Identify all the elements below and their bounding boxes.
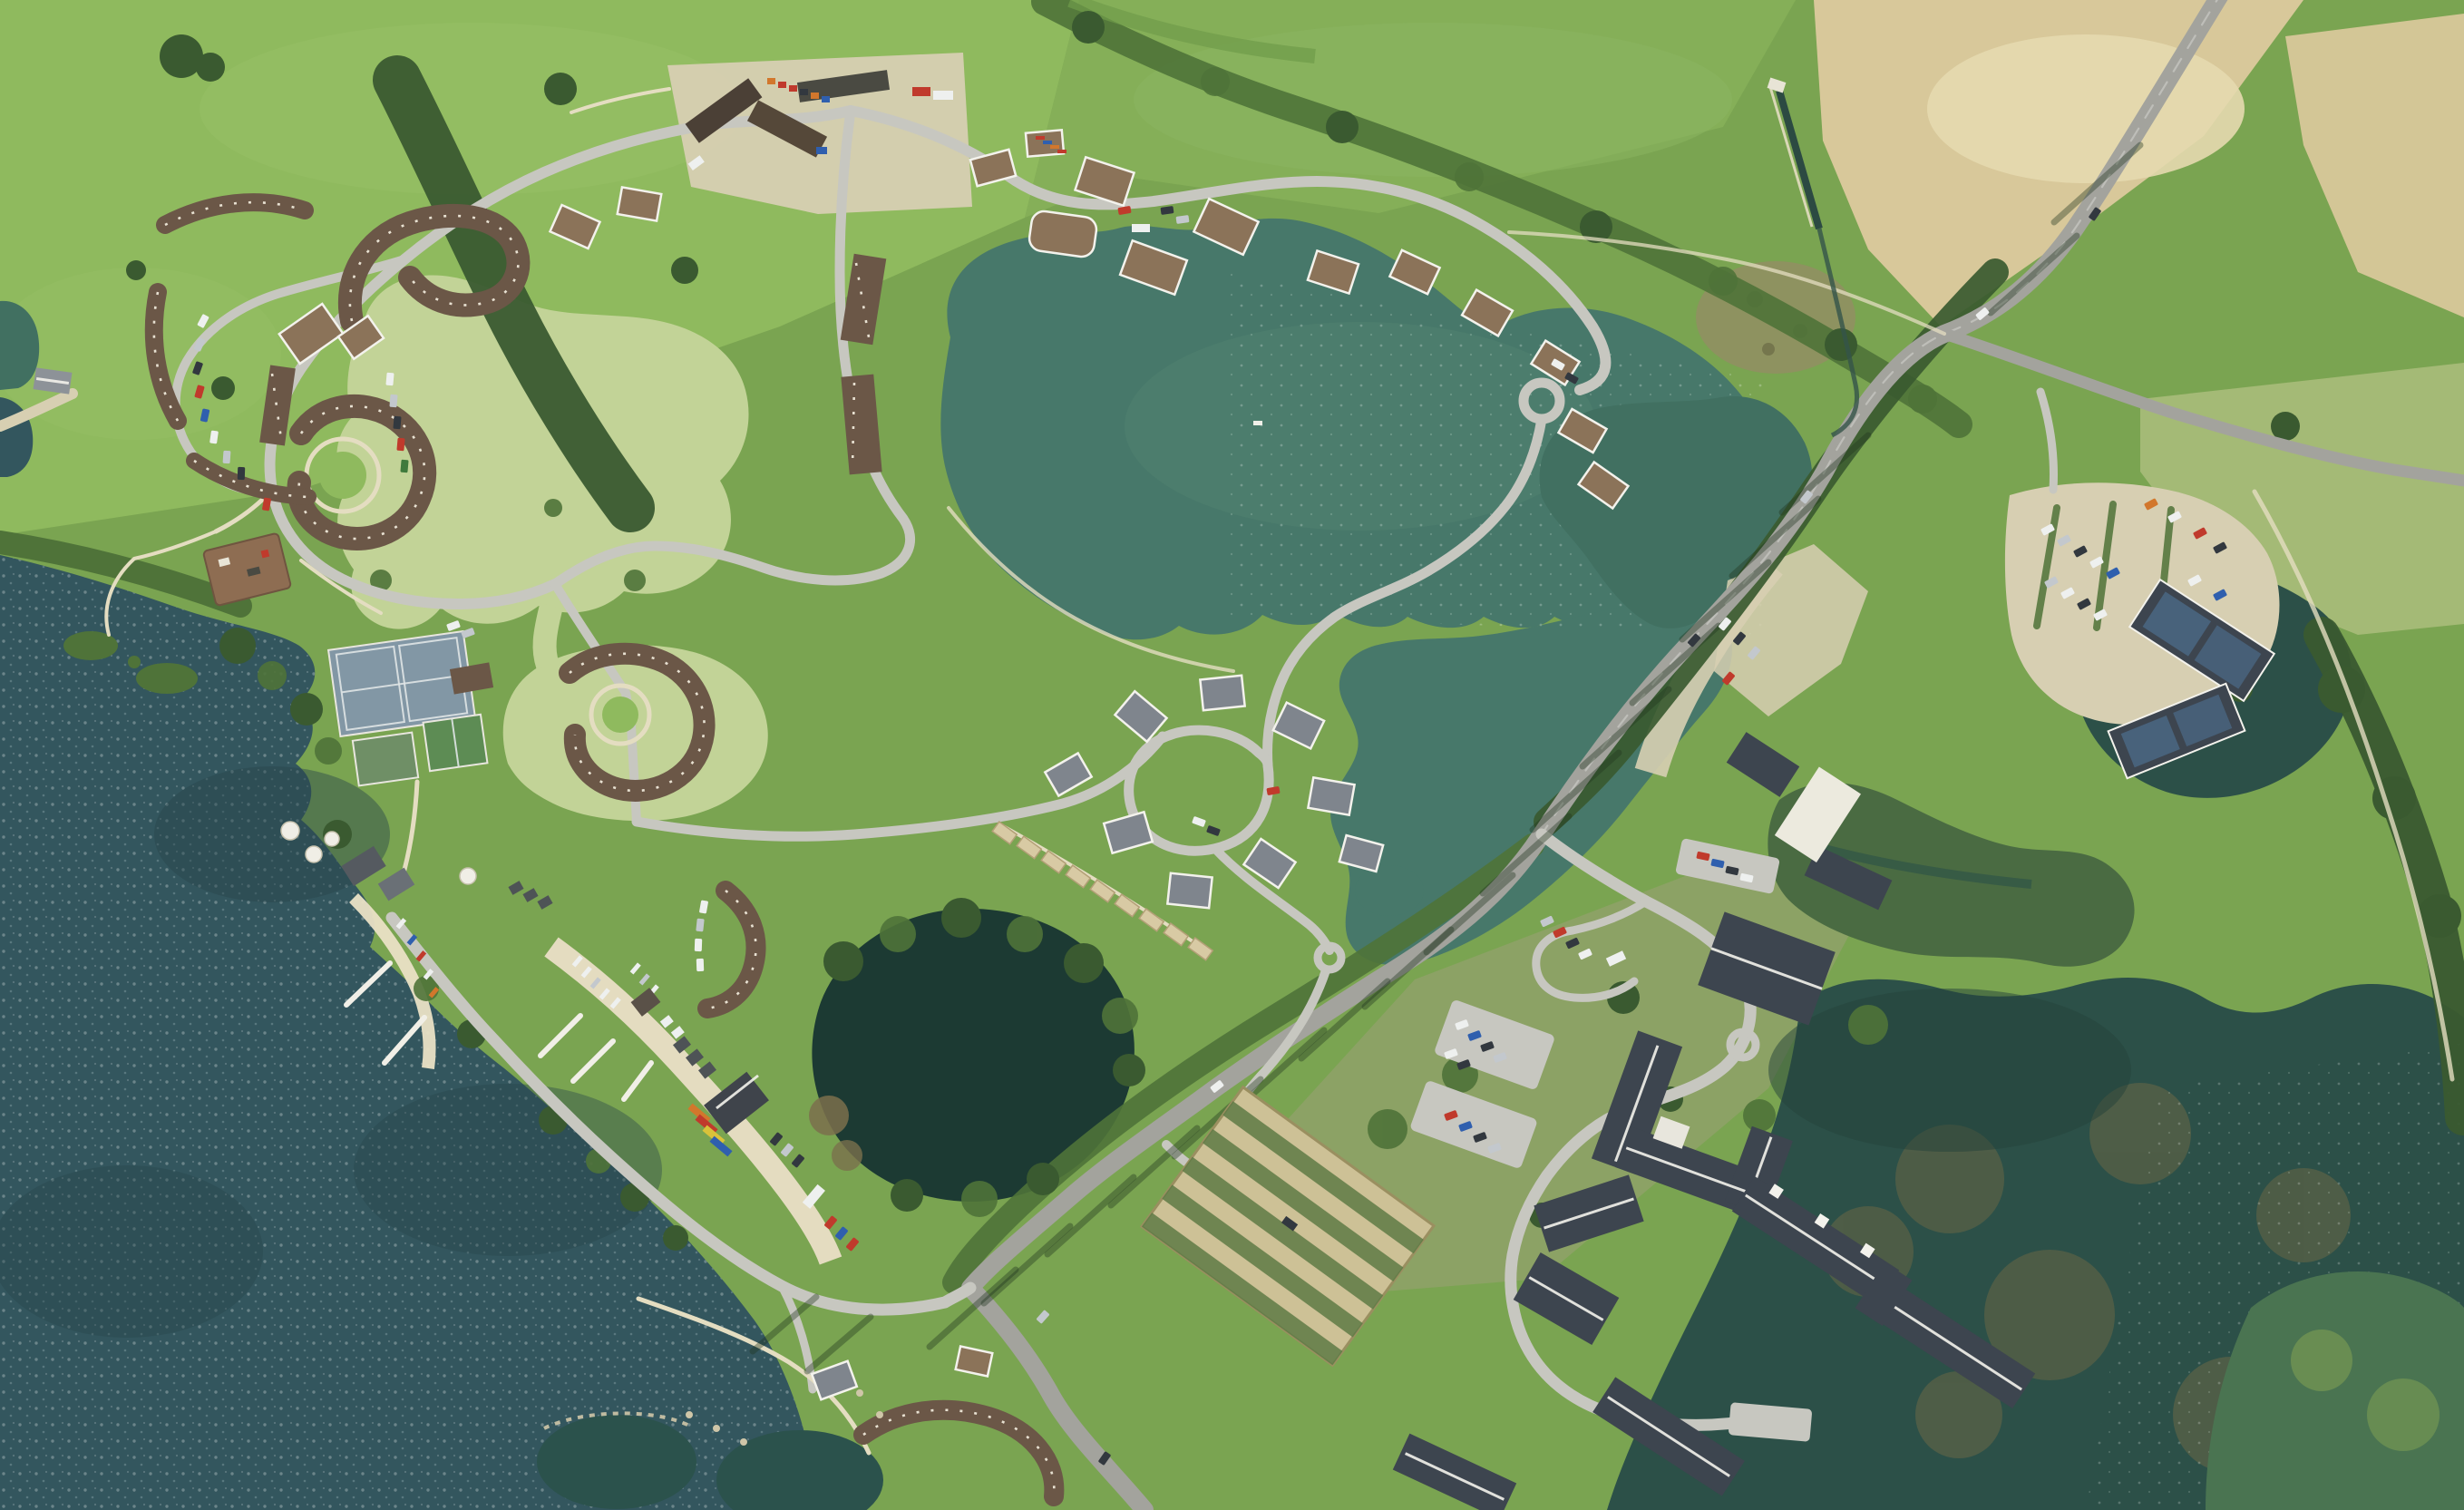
wildlife-pond [537, 1415, 696, 1509]
aerial-photo [0, 0, 2464, 1510]
aerial-photo-canvas [0, 0, 2464, 1510]
lake-island [136, 663, 198, 694]
